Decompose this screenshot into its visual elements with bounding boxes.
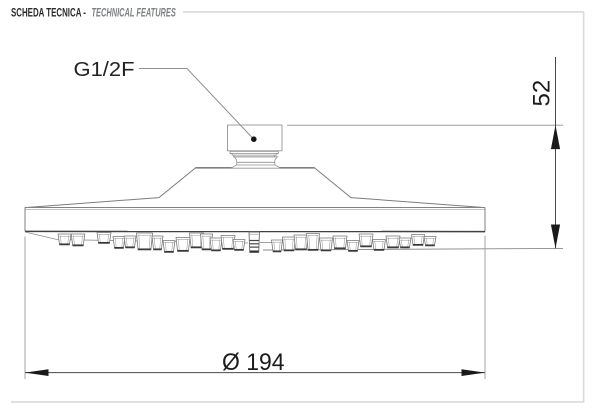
svg-text:SCHEDA TECNICA -: SCHEDA TECNICA - bbox=[11, 7, 86, 20]
svg-text:52: 52 bbox=[529, 80, 556, 107]
svg-text:TECHNICAL FEATURES: TECHNICAL FEATURES bbox=[92, 7, 177, 20]
svg-text:Ø 194: Ø 194 bbox=[222, 349, 285, 376]
svg-text:G1/2F: G1/2F bbox=[74, 58, 135, 81]
